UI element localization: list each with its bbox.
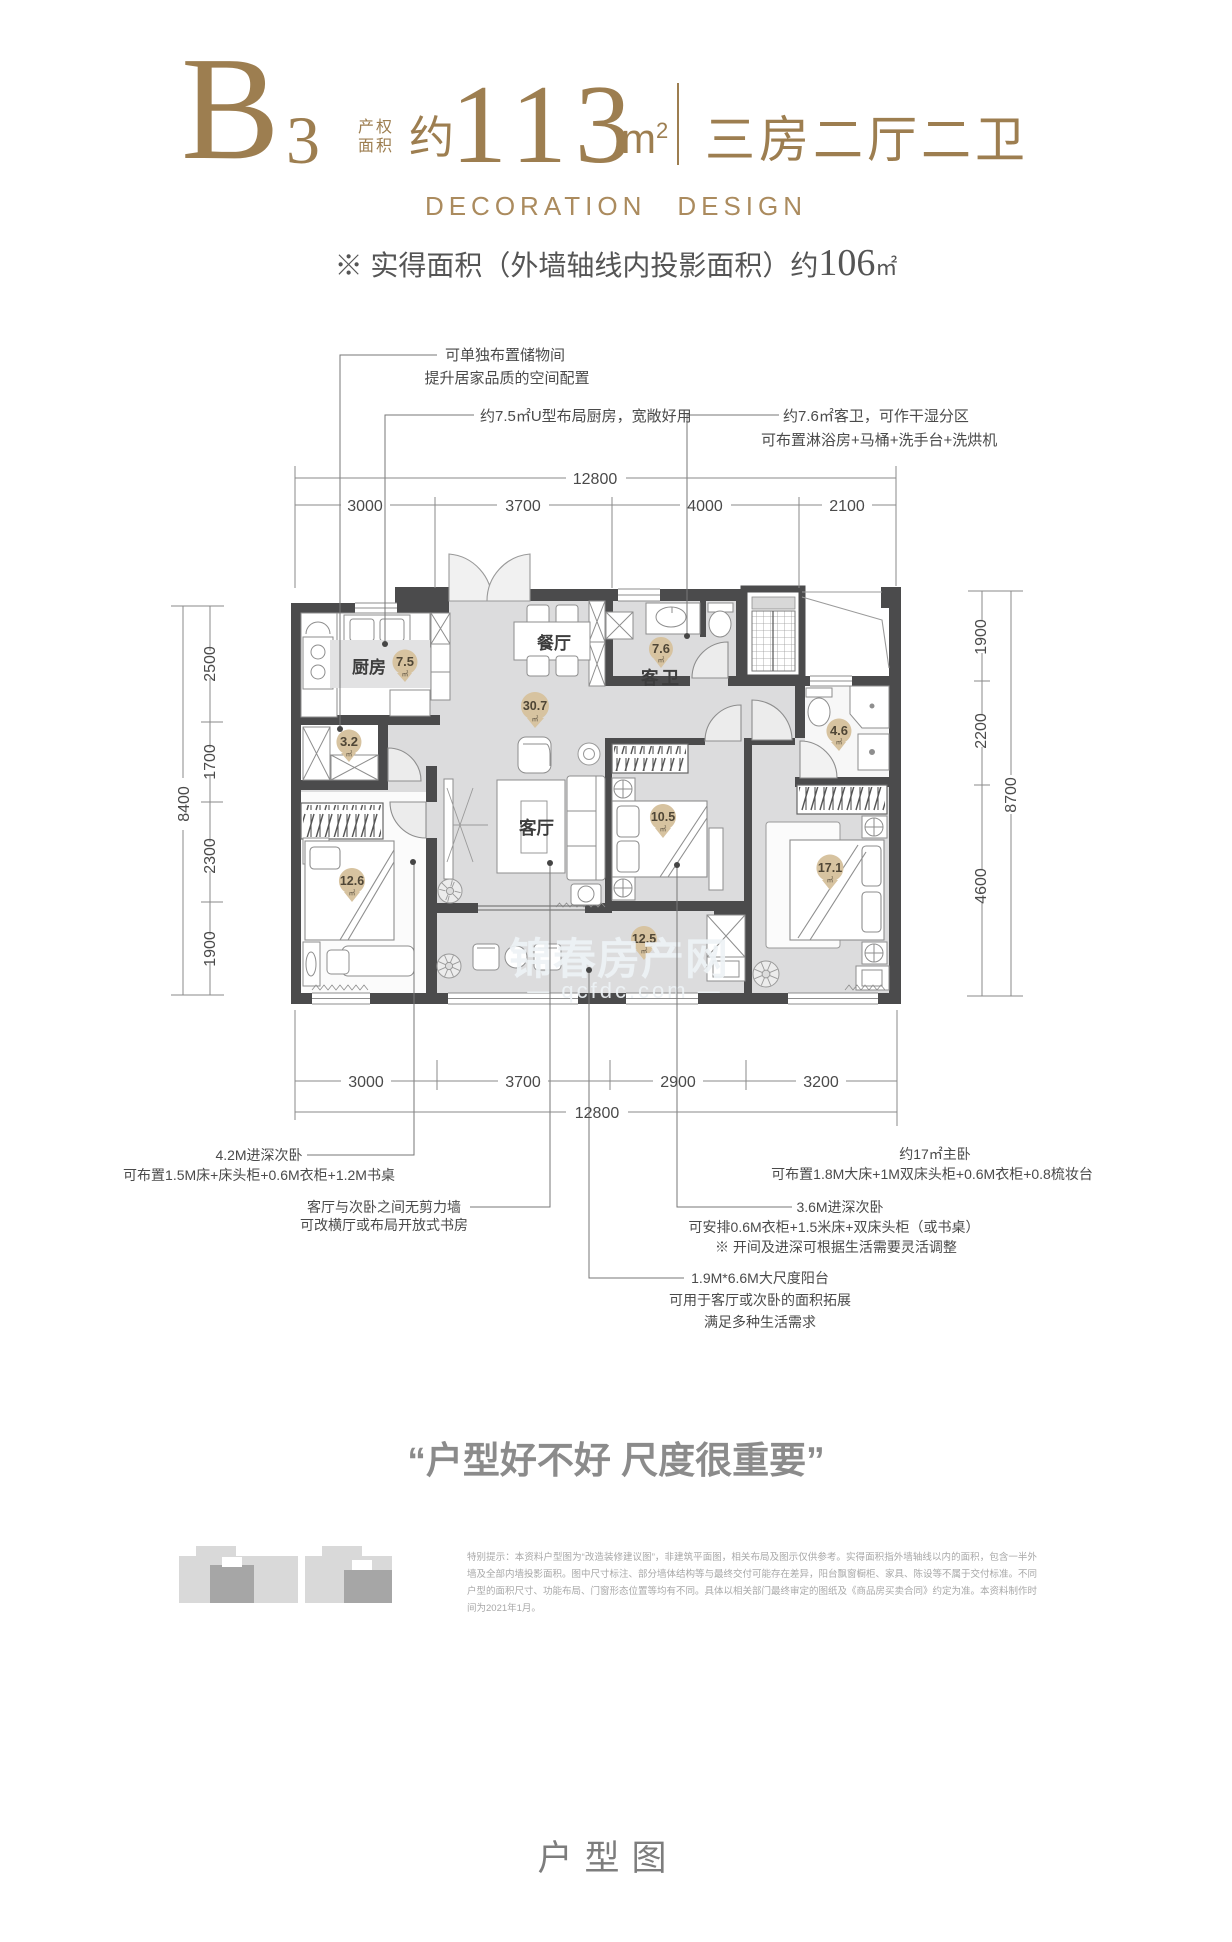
svg-text:餐厅: 餐厅 — [537, 633, 571, 653]
svg-text:1900: 1900 — [973, 619, 990, 655]
svg-text:3200: 3200 — [803, 1074, 839, 1091]
svg-text:— qcfdc.com —: — qcfdc.com — — [527, 978, 722, 1003]
svg-text:可单独布置储物间: 可单独布置储物间 — [445, 347, 565, 364]
svg-text:约7.6㎡客卫，可作干湿分区: 约7.6㎡客卫，可作干湿分区 — [783, 408, 969, 425]
svg-text:约17㎡主卧: 约17㎡主卧 — [899, 1146, 971, 1162]
svg-text:1700: 1700 — [202, 744, 219, 780]
svg-text:㎡: ㎡ — [658, 655, 665, 664]
svg-text:满足多种生活需求: 满足多种生活需求 — [704, 1314, 816, 1330]
svg-text:12800: 12800 — [573, 471, 618, 488]
svg-text:30.7: 30.7 — [523, 699, 547, 713]
svg-text:17.1: 17.1 — [818, 861, 842, 875]
svg-text:客厅: 客厅 — [518, 818, 554, 838]
svg-text:厨房: 厨房 — [352, 657, 386, 677]
svg-text:可安排0.6M衣柜+1.5米床+双床头柜（或书桌）: 可安排0.6M衣柜+1.5米床+双床头柜（或书桌） — [689, 1219, 980, 1235]
svg-text:3.2: 3.2 — [340, 734, 358, 749]
svg-text:提升居家品质的空间配置: 提升居家品质的空间配置 — [424, 370, 589, 387]
svg-text:㎡: ㎡ — [402, 669, 409, 678]
svg-text:7.5: 7.5 — [396, 654, 414, 669]
svg-text:㎡: ㎡ — [532, 714, 539, 723]
svg-text:㎡: ㎡ — [349, 888, 356, 897]
svg-text:7.6: 7.6 — [652, 641, 670, 656]
svg-text:㎡: ㎡ — [346, 749, 353, 758]
svg-text:㎡: ㎡ — [827, 875, 834, 884]
svg-text:可用于客厅或次卧的面积拓展: 可用于客厅或次卧的面积拓展 — [669, 1292, 851, 1308]
svg-text:2500: 2500 — [202, 646, 219, 682]
svg-text:1.9M*6.6M大尺度阳台: 1.9M*6.6M大尺度阳台 — [691, 1270, 829, 1286]
svg-text:4600: 4600 — [973, 868, 990, 904]
svg-text:3700: 3700 — [505, 498, 541, 515]
svg-text:㎡: ㎡ — [836, 737, 843, 746]
svg-text:1900: 1900 — [202, 931, 219, 967]
svg-text:2100: 2100 — [829, 498, 865, 515]
svg-text:2200: 2200 — [973, 713, 990, 749]
svg-text:4.2M进深次卧: 4.2M进深次卧 — [215, 1147, 302, 1163]
svg-text:㎡: ㎡ — [660, 824, 667, 833]
svg-text:可布置1.5M床+床头柜+0.6M衣柜+1.2M书桌: 可布置1.5M床+床头柜+0.6M衣柜+1.2M书桌 — [123, 1167, 395, 1183]
svg-text:3000: 3000 — [348, 1074, 384, 1091]
svg-text:约7.5㎡U型布局厨房，宽敞好用: 约7.5㎡U型布局厨房，宽敞好用 — [480, 408, 692, 425]
svg-text:4.6: 4.6 — [830, 723, 848, 738]
svg-text:2300: 2300 — [202, 838, 219, 874]
svg-text:可布置1.8M大床+1M双床头柜+0.6M衣柜+0.8梳妆台: 可布置1.8M大床+1M双床头柜+0.6M衣柜+0.8梳妆台 — [771, 1166, 1093, 1182]
svg-text:锦春房产网: 锦春房产网 — [509, 936, 729, 984]
svg-text:4000: 4000 — [687, 498, 723, 515]
svg-text:客厅与次卧之间无剪力墙: 客厅与次卧之间无剪力墙 — [307, 1199, 461, 1215]
svg-text:8700: 8700 — [1003, 777, 1020, 813]
svg-text:12.6: 12.6 — [340, 874, 364, 888]
svg-text:可改横厅或布局开放式书房: 可改横厅或布局开放式书房 — [300, 1217, 468, 1233]
svg-text:可布置淋浴房+马桶+洗手台+洗烘机: 可布置淋浴房+马桶+洗手台+洗烘机 — [761, 432, 997, 449]
svg-text:客卫: 客卫 — [640, 668, 682, 688]
svg-text:12800: 12800 — [575, 1105, 620, 1122]
svg-text:2900: 2900 — [660, 1074, 696, 1091]
svg-text:8400: 8400 — [176, 786, 193, 822]
svg-text:3000: 3000 — [347, 498, 383, 515]
svg-text:3.6M进深次卧: 3.6M进深次卧 — [796, 1199, 883, 1215]
svg-text:※ 开间及进深可根据生活需要灵活调整: ※ 开间及进深可根据生活需要灵活调整 — [715, 1239, 957, 1255]
svg-text:3700: 3700 — [505, 1074, 541, 1091]
svg-text:10.5: 10.5 — [651, 810, 675, 824]
